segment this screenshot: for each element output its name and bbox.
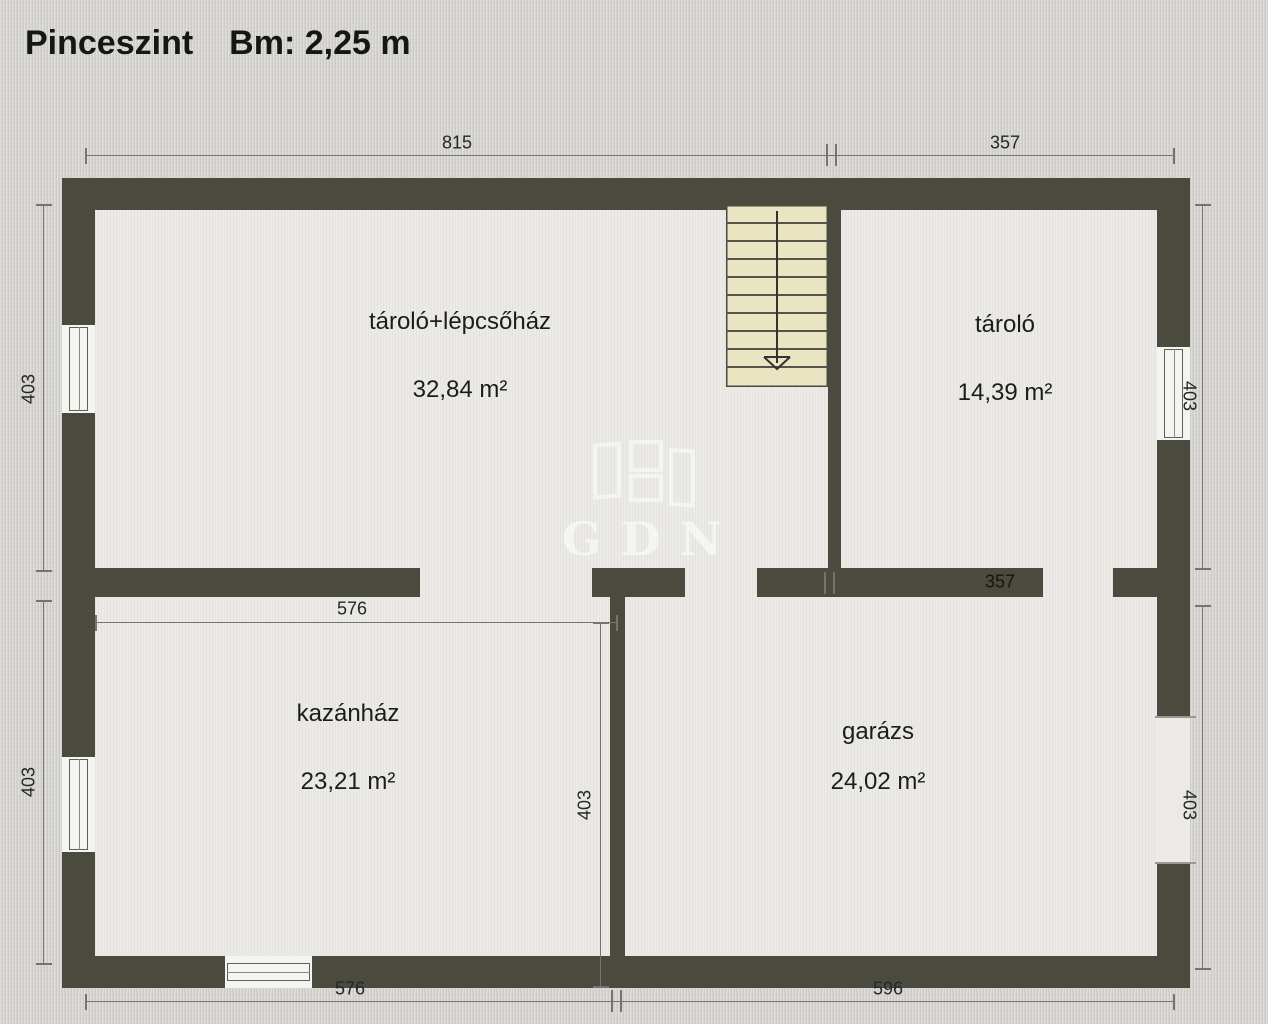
room-label-tarolo-lepcsohaz: tároló+lépcsőház 32,84 m² xyxy=(369,308,551,404)
dimension-line-bottom xyxy=(85,1001,1175,1002)
dimension-line-top xyxy=(85,155,1175,156)
window-glass-line xyxy=(1174,349,1175,438)
dimension-line-right-lower xyxy=(1202,605,1203,970)
dimension-break-tick xyxy=(824,572,826,594)
window-glass-line xyxy=(79,759,80,850)
room-label-garazs: garázs 24,02 m² xyxy=(831,718,926,796)
window-left-lower xyxy=(62,757,95,852)
room-area: 14,39 m² xyxy=(958,379,1053,407)
wall-middle-left xyxy=(95,568,420,597)
dimension-line-left-upper xyxy=(43,204,44,572)
wall-stair-right xyxy=(828,210,841,597)
dim-top-right: 357 xyxy=(990,133,1020,154)
floorplan-canvas: PinceszintBm: 2,25 m xyxy=(0,0,1268,1024)
dimension-line-inner-width xyxy=(95,622,618,623)
dimension-break-tick xyxy=(611,990,613,1012)
room-name: garázs xyxy=(842,718,914,746)
dim-bottom-right: 596 xyxy=(873,979,903,1000)
wall-kazanhaz-garazs xyxy=(610,597,625,956)
dim-inner-width: 576 xyxy=(337,599,367,620)
dim-top-left: 815 xyxy=(442,133,472,154)
page-title: PinceszintBm: 2,25 m xyxy=(25,24,411,63)
room-area: 23,21 m² xyxy=(301,768,396,796)
window-glass-line xyxy=(79,327,80,411)
dim-left-upper: 403 xyxy=(19,374,40,404)
dim-left-lower: 403 xyxy=(19,767,40,797)
floor-height-label: Bm: 2,25 m xyxy=(229,24,410,62)
room-label-kazanhaz: kazánház 23,21 m² xyxy=(297,700,400,796)
room-label-tarolo: tároló 14,39 m² xyxy=(958,311,1053,407)
dim-right-lower: 403 xyxy=(1179,790,1200,820)
dimension-line-right-upper xyxy=(1202,204,1203,570)
staircase xyxy=(726,205,828,387)
dim-inner-wall: 357 xyxy=(985,572,1015,593)
opening-edge xyxy=(1155,862,1196,864)
window-glass-line xyxy=(227,972,310,973)
wall-top xyxy=(62,178,1190,210)
window-bottom xyxy=(225,956,312,988)
wall-middle-end xyxy=(1113,568,1157,597)
dimension-line-left-lower xyxy=(43,600,44,965)
dim-inner-height: 403 xyxy=(575,790,596,820)
room-name: tároló+lépcsőház xyxy=(369,308,551,336)
floor-name: Pinceszint xyxy=(25,24,193,62)
room-area: 32,84 m² xyxy=(413,376,508,404)
room-name: tároló xyxy=(975,311,1035,339)
dimension-break-tick xyxy=(835,144,837,166)
dimension-break-tick xyxy=(826,144,828,166)
dimension-line-inner-height xyxy=(600,622,601,988)
wall-middle-center xyxy=(592,568,685,597)
room-name: kazánház xyxy=(297,700,400,728)
room-area: 24,02 m² xyxy=(831,768,926,796)
dim-bottom-left: 576 xyxy=(335,979,365,1000)
dim-right-upper: 403 xyxy=(1179,381,1200,411)
opening-edge xyxy=(1155,716,1196,718)
dimension-break-tick xyxy=(620,990,622,1012)
window-left-upper xyxy=(62,325,95,413)
dimension-break-tick xyxy=(833,572,835,594)
